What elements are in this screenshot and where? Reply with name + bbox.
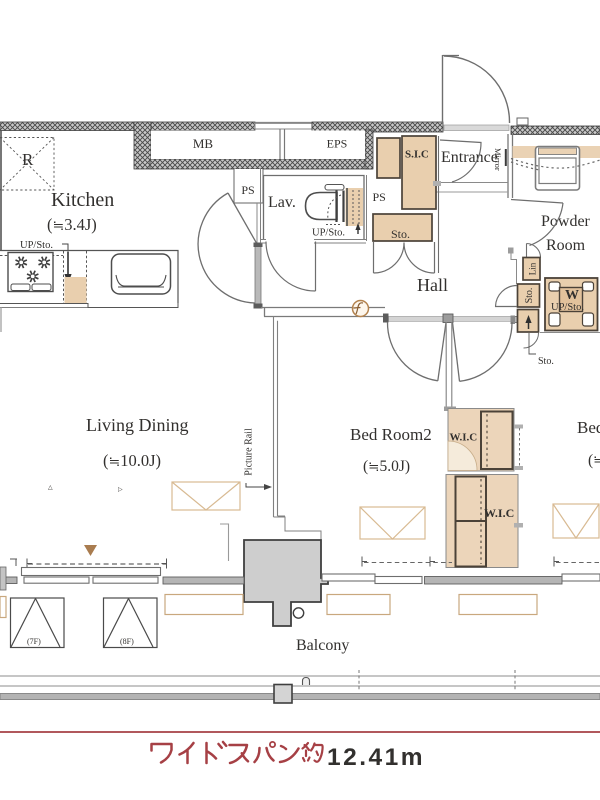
svg-text:UP/Sto.: UP/Sto. (551, 302, 584, 313)
svg-text:Kitchen: Kitchen (51, 189, 114, 211)
svg-text:12.41m: 12.41m (327, 744, 425, 771)
svg-text:(≒5.0J): (≒5.0J) (363, 458, 410, 475)
svg-text:Sto.: Sto. (538, 356, 554, 367)
svg-text:PS: PS (241, 183, 254, 197)
svg-text:Bed Room2: Bed Room2 (350, 425, 432, 444)
svg-text:R: R (22, 150, 34, 169)
svg-text:W.I.C: W.I.C (450, 432, 478, 444)
svg-text:Mirror: Mirror (493, 148, 503, 171)
svg-text:MB: MB (193, 136, 214, 151)
svg-text:Entrance: Entrance (441, 149, 498, 166)
svg-text:(≒: (≒ (588, 452, 600, 469)
svg-text:Sto.: Sto. (391, 227, 410, 241)
svg-text:Balcony: Balcony (296, 637, 349, 654)
svg-text:(7F): (7F) (27, 637, 41, 646)
svg-text:PS: PS (373, 190, 386, 204)
svg-text:Picture Rail: Picture Rail (244, 428, 255, 476)
svg-text:UP/Sto.: UP/Sto. (312, 228, 345, 239)
svg-text:Living Dining: Living Dining (86, 415, 189, 435)
svg-text:△: △ (48, 485, 53, 491)
svg-text:Hall: Hall (417, 275, 448, 295)
svg-text:(≒3.4J): (≒3.4J) (47, 215, 97, 234)
svg-text:Powder: Powder (541, 213, 591, 230)
svg-text:EPS: EPS (327, 137, 348, 151)
svg-text:Lin: Lin (528, 262, 538, 275)
svg-text:Room: Room (546, 237, 586, 254)
svg-text:Lav.: Lav. (268, 194, 296, 211)
svg-text:Bed: Bed (577, 418, 600, 437)
svg-text:Sto.: Sto. (524, 288, 535, 304)
svg-text:(8F): (8F) (120, 637, 134, 646)
svg-text:UP/Sto.: UP/Sto. (20, 240, 53, 251)
svg-text:W: W (565, 288, 579, 303)
svg-text:W.I.C: W.I.C (484, 506, 514, 520)
svg-text:▷: ▷ (118, 487, 123, 493)
svg-text:(≒10.0J): (≒10.0J) (103, 451, 161, 470)
svg-text:S.I.C: S.I.C (405, 149, 429, 161)
